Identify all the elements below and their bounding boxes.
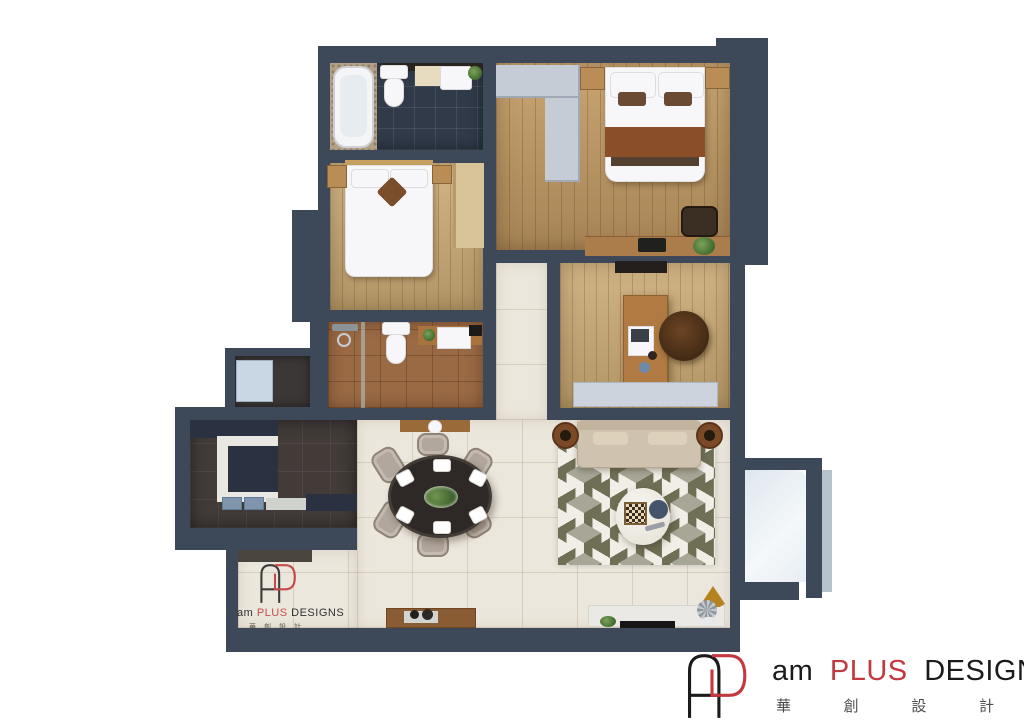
vanity1-counter (415, 66, 443, 86)
brand-word-plus: PLUS (830, 655, 908, 687)
brand-word-designs: DESIGNS (924, 655, 1024, 687)
kitchen-counter-light (266, 498, 308, 510)
bathtub-basin (340, 75, 367, 137)
vanity1-sink (440, 66, 472, 90)
living-top-wall (547, 408, 745, 420)
place-setting (433, 459, 451, 472)
sofa-cushion-right (648, 432, 687, 445)
tv-screen (620, 621, 675, 628)
utility-left-wall (225, 348, 235, 408)
left-bump-wall (292, 210, 330, 322)
mid-vertical-wall (483, 46, 496, 422)
corridor-floor (496, 263, 547, 420)
cjk-char: 創 (844, 695, 859, 716)
vanity2-kit (469, 325, 482, 336)
dining-centerpiece-flowers (424, 486, 458, 508)
master-nightstand-right (705, 67, 730, 89)
balcony-outer-rail (822, 470, 832, 592)
shower-fixture (332, 324, 358, 331)
cjk-char: 華 (776, 695, 791, 716)
ap-monogram-icon (250, 560, 300, 606)
watermark-word-plus: PLUS (257, 607, 288, 619)
kitchen-counter-c-inner (228, 446, 278, 492)
kitchen-top-wall (175, 407, 365, 420)
side-table-right-top (704, 430, 715, 441)
entry-decor (410, 610, 419, 619)
corridor-right-wall (547, 263, 560, 420)
bathroom1-plant (468, 66, 482, 80)
dining-chair-n (417, 433, 449, 456)
master-plant (693, 237, 715, 255)
side-table-left-top (560, 430, 571, 441)
tv-plant (600, 616, 616, 627)
balcony-bottom-bar (737, 580, 799, 600)
cjk-char: 計 (294, 622, 301, 632)
kitchen-bottom-wall (175, 528, 365, 550)
bedroom2-wardrobe (453, 163, 484, 248)
place-setting (433, 521, 451, 534)
washing-machine (236, 360, 273, 402)
kitchen-sink-1 (222, 497, 242, 510)
brand-lockup: am PLUS DESIGNS 華 創 設 計 (668, 645, 1008, 723)
bedroom2-nightstand-right (432, 165, 452, 184)
floor-lamp-arm (703, 617, 715, 626)
master-wardrobe-top (496, 65, 580, 98)
watermark-title: am PLUS DESIGNS (237, 607, 344, 619)
study-tray (639, 362, 650, 373)
dining-vase (428, 420, 442, 434)
bedroom2-bottom-wall (292, 310, 491, 322)
shower-glass-divider (361, 322, 365, 408)
master-blanket (605, 127, 705, 157)
shower-drain (337, 333, 351, 347)
bedroom2-nightstand-left (327, 165, 347, 188)
balcony-right-frame (806, 458, 822, 598)
toilet2-bowl (386, 334, 406, 364)
sofa-cushion-left (593, 432, 628, 445)
study-cabinet (573, 382, 718, 407)
kitchen-sink-2 (244, 497, 264, 510)
sofa-back (577, 420, 701, 430)
bathroom2-plant (423, 329, 435, 341)
ap-monogram-icon (668, 647, 756, 723)
cjk-char: 設 (911, 695, 926, 716)
right-wall-thick (730, 42, 768, 265)
bath2-left-wall (310, 322, 330, 408)
master-desk-chair (681, 206, 718, 237)
watermark-word-designs: DESIGNS (291, 607, 344, 619)
brand-word-am: am (772, 655, 813, 687)
study-niche (615, 261, 667, 273)
master-blanket-edge (611, 157, 699, 166)
chessboard (624, 502, 647, 525)
utility-top-wall (225, 348, 310, 356)
cjk-char: 設 (279, 622, 286, 632)
vanity2-sink (437, 327, 471, 349)
master-wardrobe-side (545, 98, 580, 182)
master-nightstand-left (580, 67, 605, 90)
entry-decor (422, 609, 433, 620)
right-wall (730, 265, 745, 460)
kitchen-peninsula (306, 494, 357, 511)
watermark-word-am: am (237, 607, 253, 619)
top-wall (318, 46, 737, 63)
balcony-floor (745, 470, 806, 582)
master-accent-pillow-right (664, 92, 692, 106)
watermark-logo: am PLUS DESIGNS 華 創 設 計 (237, 560, 337, 638)
cjk-char: 創 (264, 622, 271, 632)
master-laptop (638, 238, 666, 252)
toilet1-bowl (384, 78, 404, 107)
brand-chinese: 華 創 設 計 (776, 695, 994, 716)
study-cup (648, 351, 657, 360)
toilet1-tank (380, 65, 408, 79)
master-accent-pillow-left (618, 92, 646, 106)
watermark-chinese: 華 創 設 計 (249, 622, 301, 632)
cjk-char: 計 (979, 695, 994, 716)
blue-tray (649, 500, 668, 519)
study-round-chair (659, 311, 709, 361)
floor-plan-render: am PLUS DESIGNS 華 創 設 計 am PLUS DESIGNS … (0, 0, 1024, 725)
brand-title: am PLUS DESIGNS (772, 655, 1024, 688)
cjk-char: 華 (249, 622, 256, 632)
study-laptop-screen (631, 329, 649, 342)
